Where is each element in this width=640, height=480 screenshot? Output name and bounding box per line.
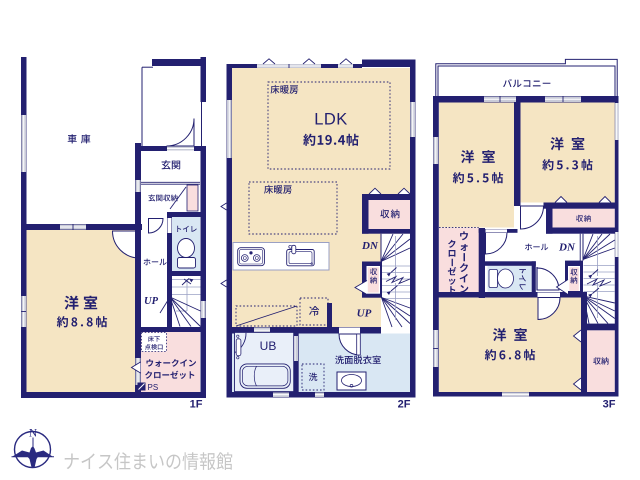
- svg-text:2F: 2F: [398, 399, 411, 411]
- svg-text:LDK: LDK: [314, 111, 348, 129]
- svg-text:DN: DN: [361, 240, 379, 252]
- svg-text:DN: DN: [558, 242, 576, 254]
- svg-text:UP: UP: [144, 296, 159, 307]
- svg-text:3F: 3F: [603, 399, 616, 411]
- svg-text:PS: PS: [148, 383, 159, 392]
- svg-text:UB: UB: [260, 339, 277, 353]
- svg-text:UP: UP: [357, 308, 372, 320]
- svg-text:1F: 1F: [190, 399, 203, 411]
